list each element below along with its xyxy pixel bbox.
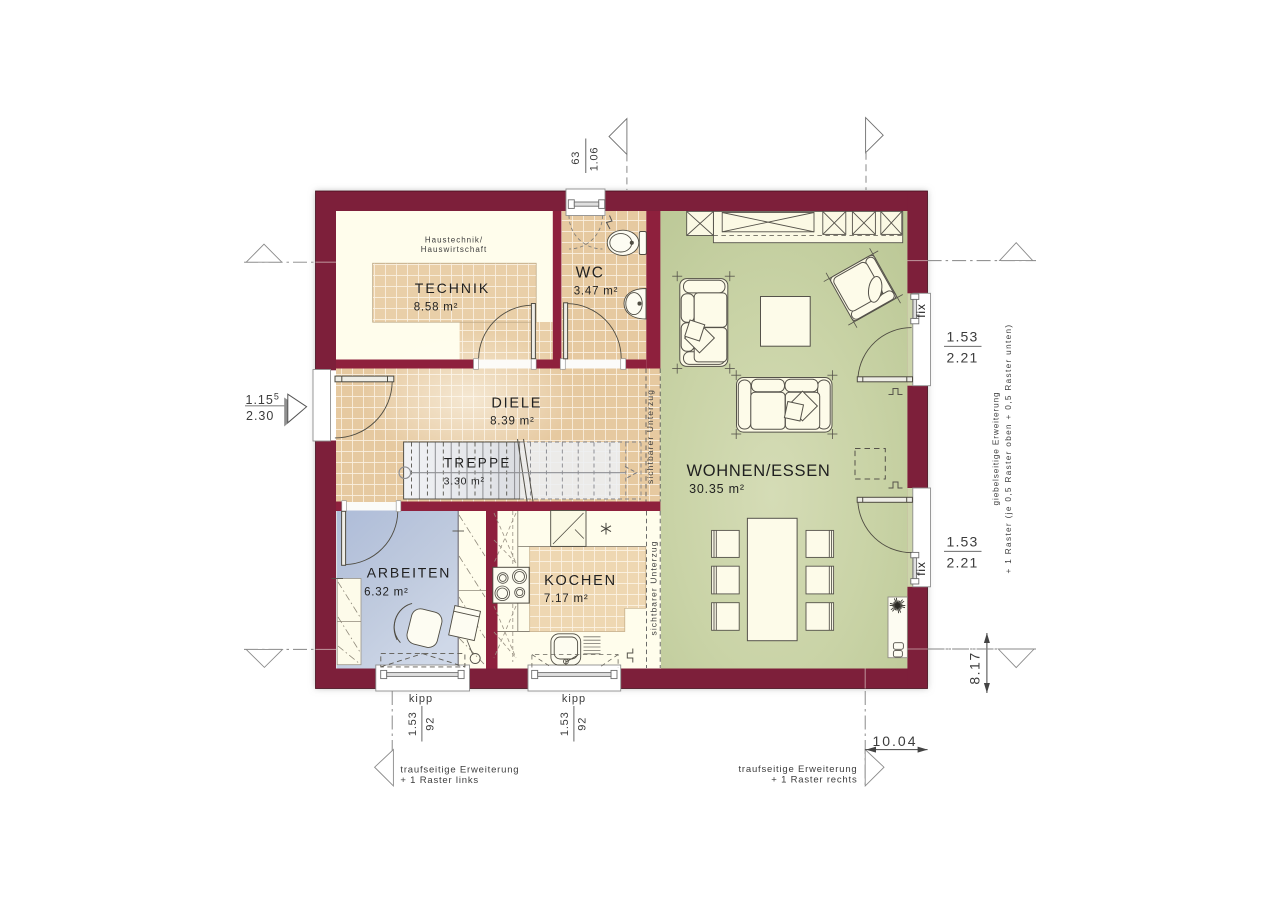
svg-text:WOHNEN/ESSEN: WOHNEN/ESSEN	[686, 462, 830, 480]
svg-text:+ 1 Raster links: + 1 Raster links	[400, 775, 479, 786]
svg-text:3.30 m²: 3.30 m²	[444, 475, 485, 487]
svg-text:1.53: 1.53	[559, 711, 571, 736]
svg-text:8.39 m²: 8.39 m²	[490, 415, 535, 427]
svg-text:+ 1 Raster rechts: + 1 Raster rechts	[771, 774, 857, 785]
svg-text:8.58 m²: 8.58 m²	[414, 302, 459, 314]
svg-text:7.17 m²: 7.17 m²	[544, 593, 589, 605]
svg-text:DIELE: DIELE	[491, 396, 542, 412]
svg-text:92: 92	[577, 717, 589, 731]
svg-text:ARBEITEN: ARBEITEN	[367, 564, 451, 580]
svg-text:8.17: 8.17	[967, 651, 983, 684]
svg-text:63: 63	[570, 151, 582, 165]
svg-text:Hauswirtschaft: Hauswirtschaft	[421, 245, 487, 254]
svg-text:+ 1 Raster (je 0,5 Raster oben: + 1 Raster (je 0,5 Raster oben + 0,5 Ras…	[1004, 324, 1013, 574]
svg-text:TREPPE: TREPPE	[444, 455, 512, 470]
svg-text:traufseitige Erweiterung: traufseitige Erweiterung	[400, 765, 519, 776]
svg-text:fix: fix	[914, 303, 928, 317]
svg-text:kipp: kipp	[562, 693, 586, 705]
svg-text:1.53: 1.53	[946, 329, 978, 345]
svg-text:92: 92	[425, 717, 437, 731]
svg-text:3.47 m²: 3.47 m²	[574, 286, 619, 298]
svg-text:sichtbarer Unterzug: sichtbarer Unterzug	[649, 540, 659, 635]
svg-text:1.53: 1.53	[946, 534, 978, 550]
svg-text:kipp: kipp	[409, 693, 433, 705]
svg-text:30.35 m²: 30.35 m²	[689, 482, 745, 496]
svg-text:10.04: 10.04	[872, 733, 917, 749]
svg-text:sichtbarer Unterzug: sichtbarer Unterzug	[645, 389, 655, 484]
svg-text:giebelseitige Erweiterung: giebelseitige Erweiterung	[992, 392, 1001, 506]
svg-text:TECHNIK: TECHNIK	[415, 280, 490, 296]
svg-text:KOCHEN: KOCHEN	[544, 573, 617, 589]
svg-text:6.32 m²: 6.32 m²	[364, 586, 409, 598]
svg-text:1.06: 1.06	[589, 147, 601, 172]
svg-text:Haustechnik/: Haustechnik/	[425, 236, 483, 245]
svg-text:1.53: 1.53	[407, 711, 419, 736]
svg-text:fix: fix	[914, 561, 928, 575]
svg-text:2.30: 2.30	[246, 409, 274, 423]
svg-text:WC: WC	[576, 265, 605, 282]
svg-text:2.21: 2.21	[946, 554, 978, 570]
svg-text:2.21: 2.21	[946, 349, 978, 365]
svg-text:traufseitige Erweiterung: traufseitige Erweiterung	[738, 764, 857, 775]
